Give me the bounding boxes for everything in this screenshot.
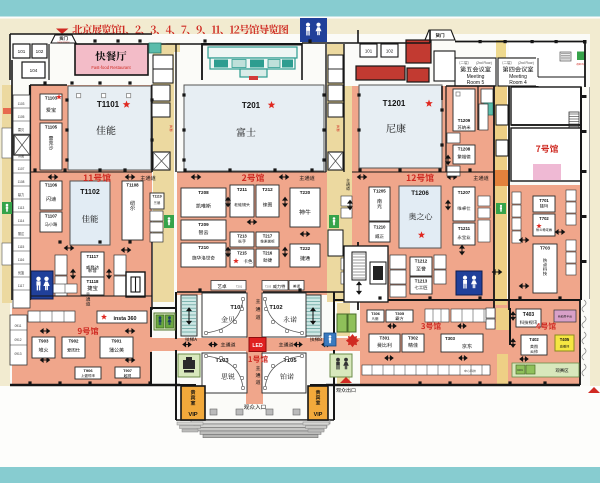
svg-text:T1205: T1205 [373, 189, 386, 194]
svg-text:T215: T215 [237, 250, 247, 255]
svg-text:1113: 1113 [18, 206, 25, 210]
svg-text:T1201: T1201 [383, 99, 406, 108]
svg-text:1107: 1107 [18, 167, 25, 171]
svg-text:T1207: T1207 [458, 190, 471, 195]
svg-text:T222: T222 [300, 246, 311, 251]
svg-text:Room 5: Room 5 [467, 80, 485, 86]
svg-text:T907: T907 [123, 369, 132, 373]
svg-text:T701: T701 [539, 198, 549, 203]
svg-text:VIP: VIP [314, 412, 323, 418]
svg-text:T1106: T1106 [45, 183, 58, 188]
svg-text:T1103: T1103 [45, 96, 58, 101]
svg-text:T201: T201 [242, 101, 261, 110]
svg-text:T201: T201 [236, 285, 243, 289]
svg-text:1117: 1117 [18, 284, 25, 288]
svg-text:T1101: T1101 [97, 100, 120, 109]
svg-text:0911: 0911 [15, 324, 22, 328]
svg-text:T906: T906 [83, 368, 93, 373]
svg-text:T402: T402 [529, 337, 539, 342]
svg-text:T301: T301 [379, 336, 390, 341]
svg-text:T209: T209 [198, 222, 209, 227]
svg-text:T902: T902 [68, 339, 79, 344]
svg-text:101: 101 [365, 49, 373, 54]
svg-text:Cargo entrance: Cargo entrance [57, 41, 69, 44]
svg-text:T1212: T1212 [415, 259, 428, 264]
svg-text:T1119: T1119 [152, 195, 161, 199]
svg-text:T1108: T1108 [126, 183, 139, 188]
svg-text:T210: T210 [198, 245, 209, 250]
svg-text:T211: T211 [237, 187, 248, 192]
svg-text:1108: 1108 [18, 180, 25, 184]
svg-text:Fast-food Restaurant: Fast-food Restaurant [91, 65, 131, 70]
svg-text:T903: T903 [38, 339, 49, 344]
svg-text:LED: LED [252, 343, 263, 349]
svg-text:T901: T901 [111, 339, 122, 344]
svg-text:(2nd Floor): (2nd Floor) [518, 61, 534, 65]
svg-text:T213: T213 [237, 234, 247, 239]
svg-text:1114: 1114 [18, 219, 25, 223]
svg-text:102: 102 [36, 49, 44, 54]
svg-text:T702: T702 [539, 216, 549, 221]
svg-text:1116: 1116 [18, 258, 25, 262]
svg-text:1105: 1105 [18, 115, 25, 119]
svg-text:T212: T212 [262, 187, 273, 192]
svg-text:鼎力: 鼎力 [18, 192, 24, 197]
svg-text:Room 4: Room 4 [509, 80, 527, 86]
svg-text:T306: T306 [371, 312, 380, 316]
svg-text:insta 360: insta 360 [113, 316, 136, 322]
svg-text:T1210: T1210 [374, 225, 387, 230]
svg-text:VIP: VIP [188, 412, 197, 418]
svg-text:0912: 0912 [14, 338, 21, 342]
svg-text:T102: T102 [269, 305, 282, 311]
svg-text:T1211: T1211 [458, 226, 471, 231]
svg-text:T405: T405 [560, 337, 570, 342]
svg-text:T1107: T1107 [45, 214, 58, 219]
svg-text:0913: 0913 [14, 352, 21, 356]
svg-text:1115: 1115 [18, 245, 25, 249]
svg-text:T1105: T1105 [45, 125, 58, 130]
svg-text:T1206: T1206 [411, 190, 429, 197]
svg-text:T203: T203 [265, 285, 272, 289]
svg-text:T1208: T1208 [458, 147, 471, 152]
svg-text:T302: T302 [408, 336, 419, 341]
svg-text:T305: T305 [395, 311, 405, 316]
svg-text:T217: T217 [263, 234, 273, 239]
svg-text:雷贝: 雷贝 [18, 127, 24, 132]
svg-text:T303: T303 [445, 336, 456, 341]
svg-text:101: 101 [18, 49, 26, 54]
svg-text:T1117: T1117 [87, 254, 100, 259]
svg-text:T1209: T1209 [458, 118, 471, 123]
svg-text:T403: T403 [523, 312, 535, 318]
svg-text:优篮: 优篮 [18, 270, 25, 275]
svg-text:T703: T703 [540, 246, 551, 251]
svg-text:102: 102 [386, 49, 394, 54]
svg-text:T220: T220 [300, 190, 311, 195]
svg-text:0401: 0401 [517, 368, 523, 372]
svg-text:T208: T208 [198, 190, 209, 195]
svg-text:T1102: T1102 [80, 189, 100, 196]
svg-text:T1213: T1213 [415, 279, 428, 284]
svg-text:104: 104 [30, 68, 38, 73]
svg-text:T1118: T1118 [87, 279, 100, 284]
svg-text:(2nd Floor): (2nd Floor) [476, 61, 492, 65]
svg-text:1103: 1103 [18, 102, 25, 106]
svg-text:丽达: 丽达 [18, 231, 25, 236]
svg-text:T216: T216 [263, 250, 273, 255]
